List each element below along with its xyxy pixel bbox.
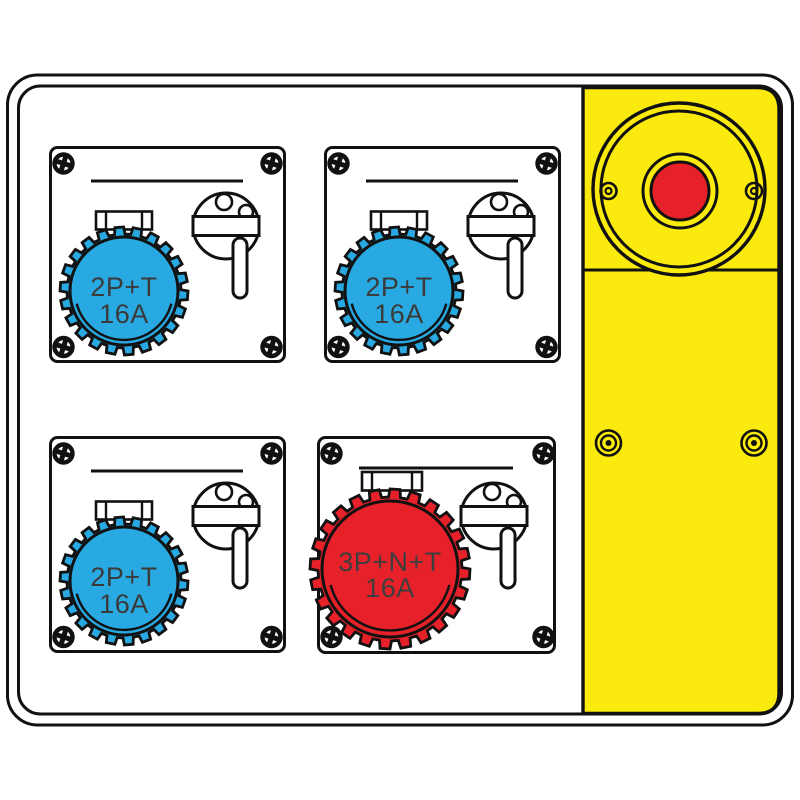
plate-screw-icon: [321, 443, 342, 464]
socket-3pnt-16a[interactable]: 3P+N+T 16A: [310, 489, 470, 649]
socket-label-line1: 2P+T: [90, 272, 157, 302]
estop-panel: [583, 88, 779, 714]
socket-module-bottom-right: 3P+N+T 16A: [310, 438, 555, 653]
plate-screw-icon: [53, 153, 74, 174]
plate-screw-icon: [328, 153, 349, 174]
plate-screw-icon: [328, 336, 349, 357]
emergency-stop-button[interactable]: [651, 162, 709, 220]
plate-screw-icon: [533, 443, 554, 464]
socket-label-line1: 2P+T: [90, 562, 157, 592]
socket-module-top-right: 2P+T 16A: [326, 148, 560, 362]
plate-screw-icon: [321, 626, 342, 647]
socket-label-line2: 16A: [99, 589, 149, 619]
plate-screw-icon: [536, 336, 557, 357]
socket-module-bottom-left: 2P+T 16A: [51, 438, 285, 652]
plate-screw-icon: [536, 153, 557, 174]
plate-screw-icon: [261, 626, 282, 647]
plate-screw-icon: [53, 336, 74, 357]
plate-screw-icon: [533, 626, 554, 647]
distribution-board-drawing: 2P+T 16A 2P+T 16A: [0, 0, 800, 800]
socket-label-line2: 16A: [374, 299, 424, 329]
plate-screw-icon: [261, 336, 282, 357]
plate-screw-icon: [53, 626, 74, 647]
plate-screw-icon: [261, 153, 282, 174]
plate-screw-icon: [261, 443, 282, 464]
socket-label-line1: 2P+T: [365, 272, 432, 302]
plate-screw-icon: [53, 443, 74, 464]
drawing-canvas: 2P+T 16A 2P+T 16A: [0, 0, 800, 800]
socket-module-top-left: 2P+T 16A: [51, 148, 285, 362]
socket-label-line2: 16A: [99, 299, 149, 329]
socket-label-line2: 16A: [365, 573, 415, 603]
